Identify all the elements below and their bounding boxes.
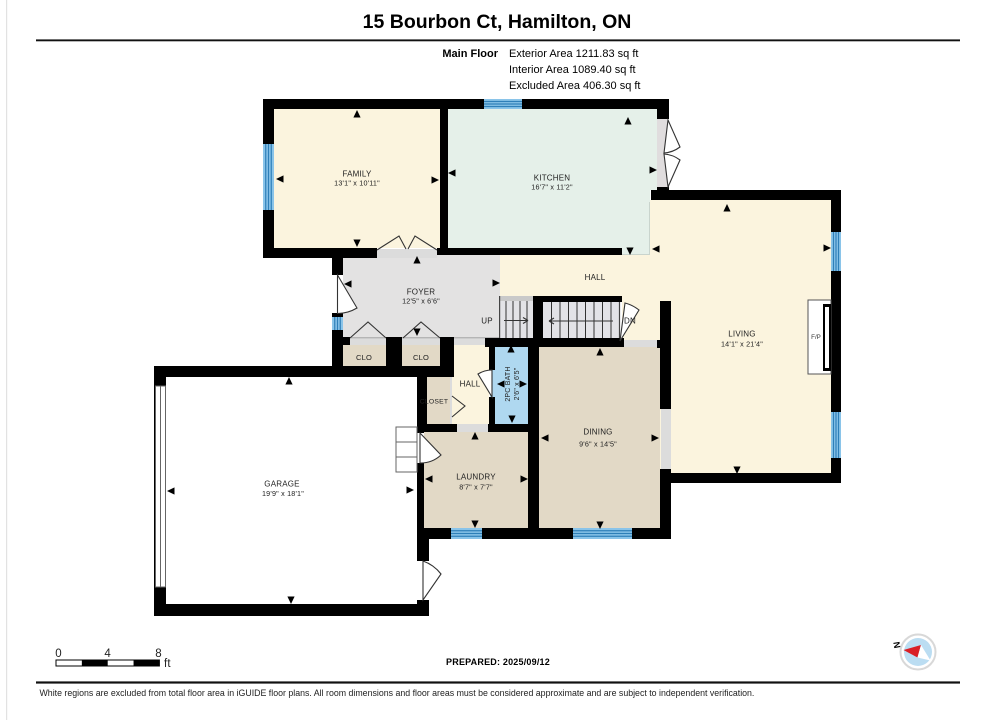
svg-text:White regions are excluded fro: White regions are excluded from total fl… bbox=[40, 688, 755, 698]
svg-text:13'1" x 10'11": 13'1" x 10'11" bbox=[334, 179, 380, 188]
svg-text:ft: ft bbox=[164, 658, 171, 670]
svg-text:4: 4 bbox=[104, 648, 111, 660]
svg-text:19'9" x 18'1": 19'9" x 18'1" bbox=[262, 489, 304, 498]
svg-text:KITCHEN: KITCHEN bbox=[534, 174, 571, 183]
svg-text:15 Bourbon Ct, Hamilton, ON: 15 Bourbon Ct, Hamilton, ON bbox=[363, 11, 632, 33]
svg-text:PREPARED: 2025/09/12: PREPARED: 2025/09/12 bbox=[446, 657, 550, 667]
svg-text:CLO: CLO bbox=[356, 353, 372, 362]
svg-text:Exterior Area 1211.83 sq ft: Exterior Area 1211.83 sq ft bbox=[509, 48, 638, 60]
svg-text:FOYER: FOYER bbox=[407, 288, 436, 297]
svg-text:CLO: CLO bbox=[413, 353, 429, 362]
svg-text:HALL: HALL bbox=[460, 380, 481, 389]
svg-text:UP: UP bbox=[481, 317, 493, 326]
svg-text:Main Floor: Main Floor bbox=[442, 48, 498, 60]
svg-text:HALL: HALL bbox=[585, 273, 606, 282]
svg-text:LIVING: LIVING bbox=[728, 330, 755, 339]
svg-text:DN: DN bbox=[624, 317, 636, 326]
svg-text:2PC BATH: 2PC BATH bbox=[505, 366, 512, 401]
svg-text:9'6" x 14'5": 9'6" x 14'5" bbox=[579, 440, 617, 449]
svg-text:LAUNDRY: LAUNDRY bbox=[456, 473, 496, 482]
svg-text:16'7" x 11'2": 16'7" x 11'2" bbox=[531, 183, 573, 192]
svg-text:0: 0 bbox=[55, 648, 62, 660]
svg-text:F/P: F/P bbox=[811, 334, 821, 341]
svg-text:Interior Area 1089.40 sq ft: Interior Area 1089.40 sq ft bbox=[509, 64, 636, 76]
svg-text:DINING: DINING bbox=[583, 428, 612, 437]
svg-text:8: 8 bbox=[155, 648, 162, 660]
svg-text:2'6" x 6'5": 2'6" x 6'5" bbox=[514, 367, 521, 400]
svg-text:FAMILY: FAMILY bbox=[342, 170, 372, 179]
svg-text:14'1" x 21'4": 14'1" x 21'4" bbox=[721, 340, 763, 349]
svg-text:Excluded Area 406.30 sq ft: Excluded Area 406.30 sq ft bbox=[509, 80, 640, 92]
svg-text:GARAGE: GARAGE bbox=[264, 480, 299, 489]
svg-text:CLOSET: CLOSET bbox=[420, 399, 448, 406]
svg-text:8'7" x 7'7": 8'7" x 7'7" bbox=[459, 483, 493, 492]
svg-text:12'5" x 6'6": 12'5" x 6'6" bbox=[402, 297, 440, 306]
